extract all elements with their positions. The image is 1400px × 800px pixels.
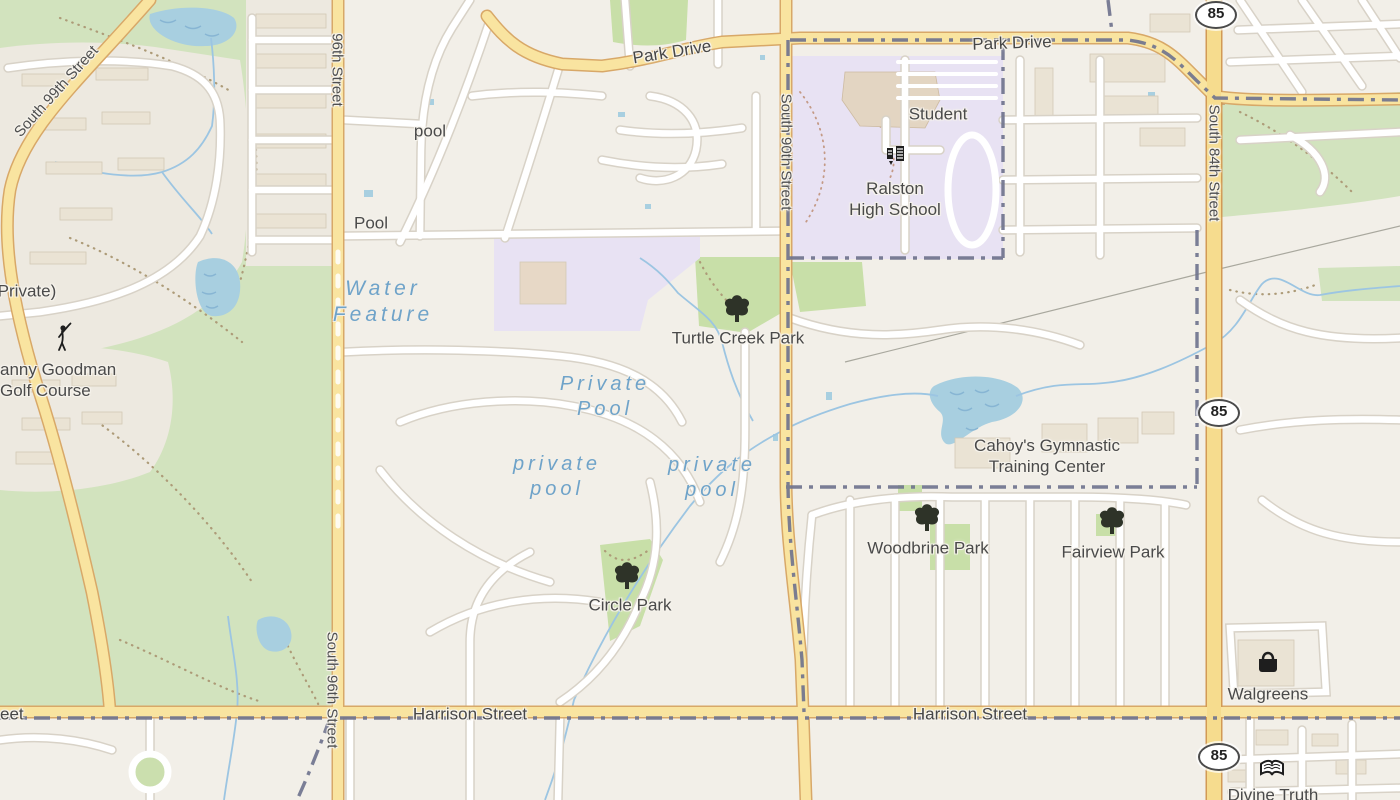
highway-shield-85-bottom: 85 [1198, 743, 1240, 771]
highway-shield-85-middle: 85 [1198, 399, 1240, 427]
highway-shield-85-top: 85 [1195, 1, 1237, 29]
book-icon [1261, 761, 1283, 775]
map-canvas [0, 0, 1400, 800]
map-viewport[interactable]: South 99th Street 96th Street South 96th… [0, 0, 1400, 800]
